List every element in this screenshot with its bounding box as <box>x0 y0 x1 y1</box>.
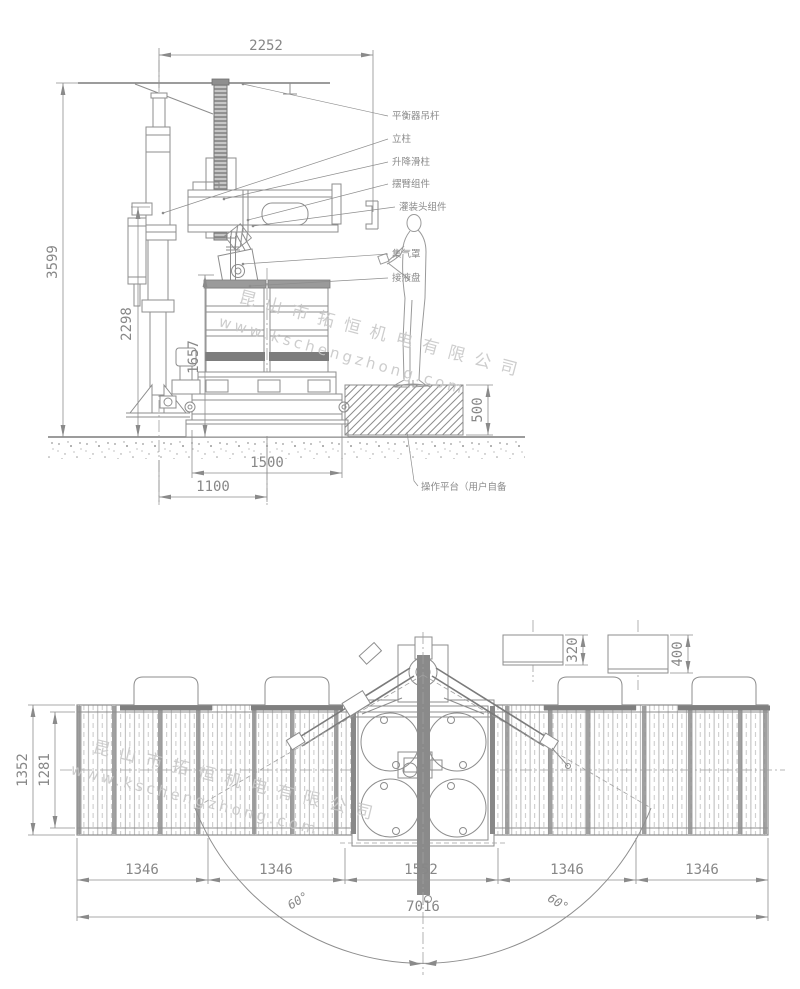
label-drip-tray: 接液盘 <box>392 272 421 284</box>
ground <box>48 437 525 459</box>
drawing-canvas: 2252 3599 2298 1657 1500 1100 <box>0 0 800 989</box>
dim-text: 3599 <box>45 245 61 279</box>
detail-block-400: 400 <box>608 620 693 690</box>
dim-text: 2252 <box>249 38 283 54</box>
label-column: 立柱 <box>392 133 412 145</box>
plan-view: 60° 60° 320 400 1352 <box>15 620 785 975</box>
dim-total-height: 3599 <box>45 83 78 437</box>
filling-head-coupler <box>366 201 378 229</box>
dim-platform-height: 500 <box>466 385 493 435</box>
dim-swing-left: 60° <box>285 889 311 912</box>
label-balancer-rod: 平衡器吊杆 <box>392 110 440 122</box>
dim-swing-right: 60° <box>545 891 571 914</box>
dim-text: 2298 <box>119 307 135 341</box>
label-filling-head: 灌装头组件 <box>399 201 447 213</box>
dim-text: 400 <box>670 641 686 666</box>
balancer-beam <box>78 83 330 114</box>
dim-text: 320 <box>565 637 581 662</box>
detail-block-320: 320 <box>503 620 588 682</box>
dim-text: 1657 <box>186 340 202 374</box>
dim-total-length: 7016 <box>77 899 768 917</box>
dim-text: 1281 <box>37 753 53 787</box>
dim-text: 1100 <box>196 479 230 495</box>
label-lift-slide: 升降滑柱 <box>392 156 431 168</box>
dim-text: 1346 <box>259 862 293 878</box>
dim-text: 1552 <box>404 862 438 878</box>
dim-text: 1352 <box>15 753 31 787</box>
dim-text: 7016 <box>406 899 440 915</box>
label-platform: 操作平台（用户自备 <box>421 481 507 493</box>
dim-text: 1346 <box>685 862 719 878</box>
front-view: 2252 3599 2298 1657 1500 1100 <box>45 38 525 505</box>
label-gas-hood: 集气罩 <box>392 248 421 260</box>
dim-text: 500 <box>470 397 486 422</box>
dim-text: 1346 <box>550 862 584 878</box>
label-swing-arm: 摆臂组件 <box>392 178 431 190</box>
swing-arm-assembly <box>188 182 341 250</box>
dim-text: 1346 <box>125 862 159 878</box>
